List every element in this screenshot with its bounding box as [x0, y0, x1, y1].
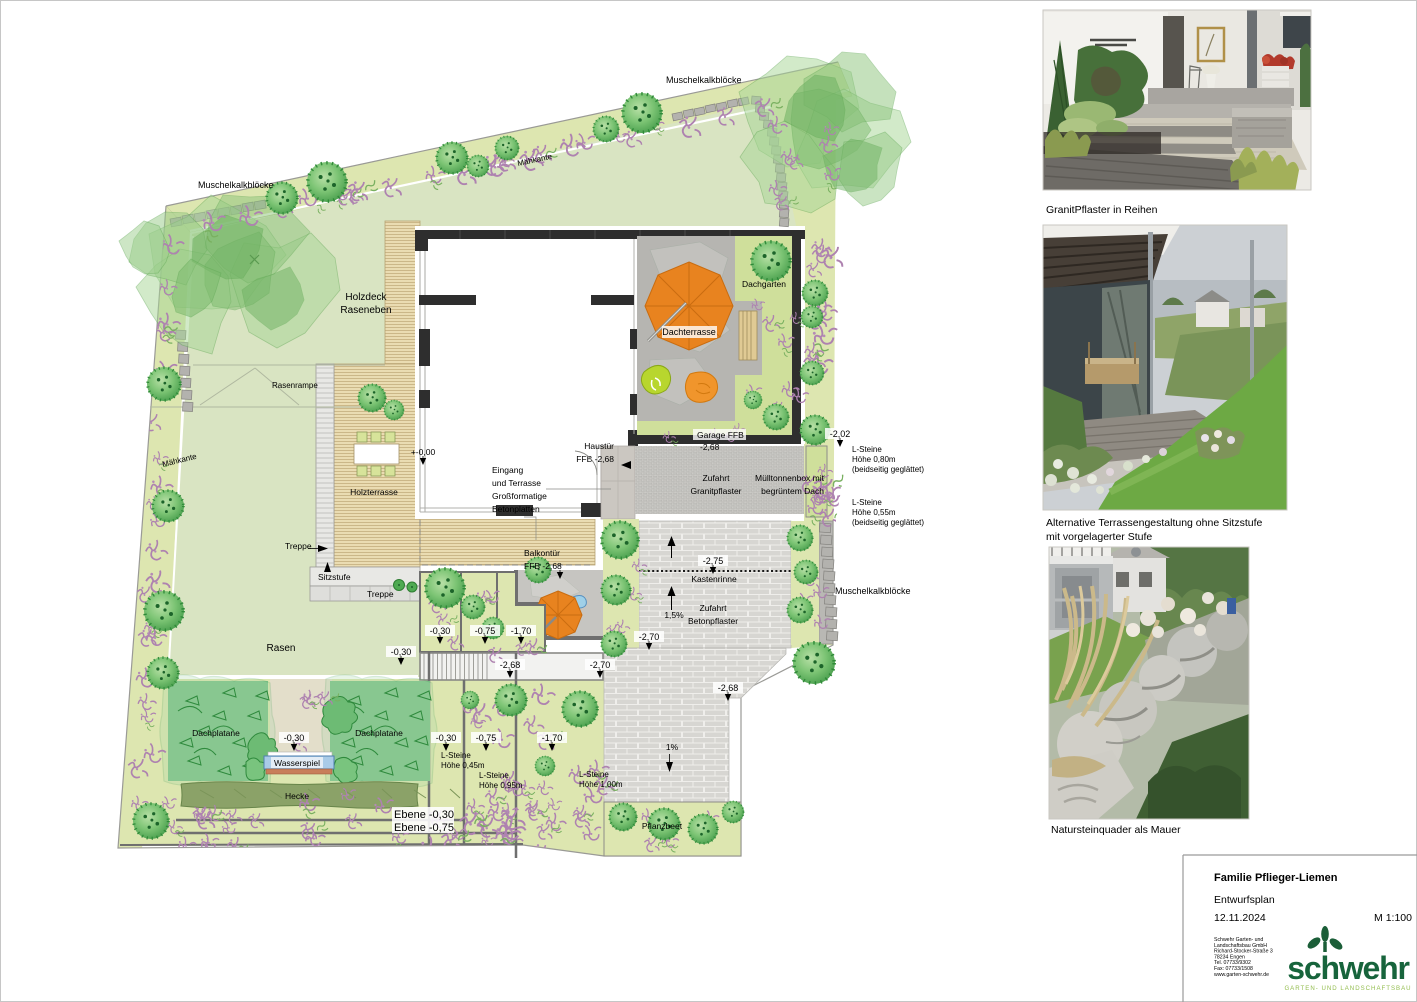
- svg-text:Höhe 0,55m: Höhe 0,55m: [852, 508, 896, 517]
- svg-text:Garage FFB: Garage FFB: [697, 430, 744, 440]
- svg-text:Dachplatane: Dachplatane: [355, 728, 403, 738]
- svg-text:-0,30: -0,30: [436, 733, 457, 743]
- svg-text:Höhe 0,80m: Höhe 0,80m: [852, 455, 896, 464]
- svg-text:L-Steine: L-Steine: [441, 751, 471, 760]
- svg-text:Dachgarten: Dachgarten: [742, 279, 786, 289]
- svg-text:Treppe: Treppe: [285, 541, 312, 551]
- svg-text:Hecke: Hecke: [285, 791, 309, 801]
- svg-text:GranitPflaster in Reihen: GranitPflaster in Reihen: [1046, 204, 1158, 216]
- svg-text:Wasserspiel: Wasserspiel: [274, 758, 320, 768]
- svg-text:1,5%: 1,5%: [664, 610, 684, 620]
- svg-text:Muschelkalkblöcke: Muschelkalkblöcke: [835, 586, 911, 596]
- svg-text:schwehr: schwehr: [1287, 950, 1409, 986]
- svg-text:Ebene -0,30: Ebene -0,30: [394, 809, 454, 821]
- svg-text:12.11.2024: 12.11.2024: [1214, 912, 1266, 924]
- svg-text:www.garten-schwehr.de: www.garten-schwehr.de: [1214, 972, 1269, 978]
- svg-text:-1,70: -1,70: [542, 733, 563, 743]
- svg-text:Holzdeck: Holzdeck: [345, 292, 387, 303]
- svg-text:Sitzstufe: Sitzstufe: [318, 572, 351, 582]
- svg-text:mit vorgelagerter Stufe: mit vorgelagerter Stufe: [1046, 531, 1152, 543]
- svg-text:-2,70: -2,70: [590, 660, 611, 670]
- svg-text:begrüntem Dach: begrüntem Dach: [761, 486, 824, 496]
- svg-text:Höhe 1,00m: Höhe 1,00m: [579, 780, 623, 789]
- svg-text:+-0,00: +-0,00: [411, 447, 436, 457]
- svg-text:-2,68: -2,68: [500, 660, 521, 670]
- svg-text:-0,30: -0,30: [430, 626, 451, 636]
- svg-text:Familie Pflieger-Liemen: Familie Pflieger-Liemen: [1214, 872, 1338, 884]
- svg-text:L-Steine: L-Steine: [579, 770, 609, 779]
- svg-text:Betonpflaster: Betonpflaster: [688, 616, 738, 626]
- svg-text:-0,75: -0,75: [475, 626, 496, 636]
- svg-text:(beidseitig geglättet): (beidseitig geglättet): [852, 518, 924, 527]
- svg-text:Zufahrt: Zufahrt: [700, 603, 728, 613]
- svg-text:Alternative Terrassengestaltun: Alternative Terrassengestaltung ohne Sit…: [1046, 517, 1263, 529]
- svg-text:L-Steine: L-Steine: [852, 445, 882, 454]
- svg-text:Großformatige: Großformatige: [492, 491, 547, 501]
- svg-text:GARTEN- UND LANDSCHAFTSBAU: GARTEN- UND LANDSCHAFTSBAU: [1284, 985, 1411, 992]
- svg-text:Holzterrasse: Holzterrasse: [350, 487, 398, 497]
- svg-text:-0,75: -0,75: [476, 733, 497, 743]
- svg-text:-2,02: -2,02: [830, 429, 851, 439]
- svg-text:Pflanzbeet: Pflanzbeet: [642, 821, 683, 831]
- svg-text:Kastenrinne: Kastenrinne: [691, 574, 737, 584]
- svg-text:Entwurfsplan: Entwurfsplan: [1214, 894, 1275, 906]
- svg-text:L-Steine: L-Steine: [852, 498, 882, 507]
- svg-text:(beidseitig geglättet): (beidseitig geglättet): [852, 465, 924, 474]
- svg-text:Granitpflaster: Granitpflaster: [690, 486, 741, 496]
- svg-text:Muschelkalkblöcke: Muschelkalkblöcke: [198, 180, 274, 190]
- svg-text:und Terrasse: und Terrasse: [492, 478, 541, 488]
- svg-text:Höhe 0,95m: Höhe 0,95m: [479, 781, 523, 790]
- svg-text:Treppe: Treppe: [367, 589, 394, 599]
- svg-text:-1,70: -1,70: [511, 626, 532, 636]
- svg-text:Ebene -0,75: Ebene -0,75: [394, 822, 454, 834]
- svg-text:-2,68: -2,68: [700, 442, 720, 452]
- svg-text:-2,70: -2,70: [639, 632, 660, 642]
- svg-text:Balkontür: Balkontür: [524, 548, 560, 558]
- svg-text:M 1:100: M 1:100: [1374, 912, 1412, 924]
- svg-text:Natursteinquader als Mauer: Natursteinquader als Mauer: [1051, 824, 1181, 836]
- svg-text:-2,75: -2,75: [703, 556, 724, 566]
- svg-text:Raseneben: Raseneben: [340, 305, 391, 316]
- svg-text:-0,30: -0,30: [391, 647, 412, 657]
- svg-text:-2,68: -2,68: [718, 683, 739, 693]
- svg-text:L-Steine: L-Steine: [479, 771, 509, 780]
- svg-text:Dachterrasse: Dachterrasse: [662, 327, 716, 337]
- svg-text:Höhe 0,45m: Höhe 0,45m: [441, 761, 485, 770]
- svg-text:Muschelkalkblöcke: Muschelkalkblöcke: [666, 75, 742, 85]
- svg-text:Rasen: Rasen: [267, 643, 296, 654]
- svg-text:Rasenrampe: Rasenrampe: [272, 381, 318, 390]
- svg-text:Eingang: Eingang: [492, 465, 523, 475]
- svg-text:Mülltonnenbox mit: Mülltonnenbox mit: [755, 473, 825, 483]
- svg-text:-0,30: -0,30: [284, 733, 305, 743]
- svg-text:Dachplatane: Dachplatane: [192, 728, 240, 738]
- svg-text:Haustür: Haustür: [584, 441, 614, 451]
- svg-text:Betonplatten: Betonplatten: [492, 504, 540, 514]
- svg-text:Zufahrt: Zufahrt: [703, 473, 731, 483]
- svg-text:FFB -2,68: FFB -2,68: [576, 454, 614, 464]
- svg-text:FFB -2,68: FFB -2,68: [524, 561, 562, 571]
- svg-text:1%: 1%: [666, 742, 679, 752]
